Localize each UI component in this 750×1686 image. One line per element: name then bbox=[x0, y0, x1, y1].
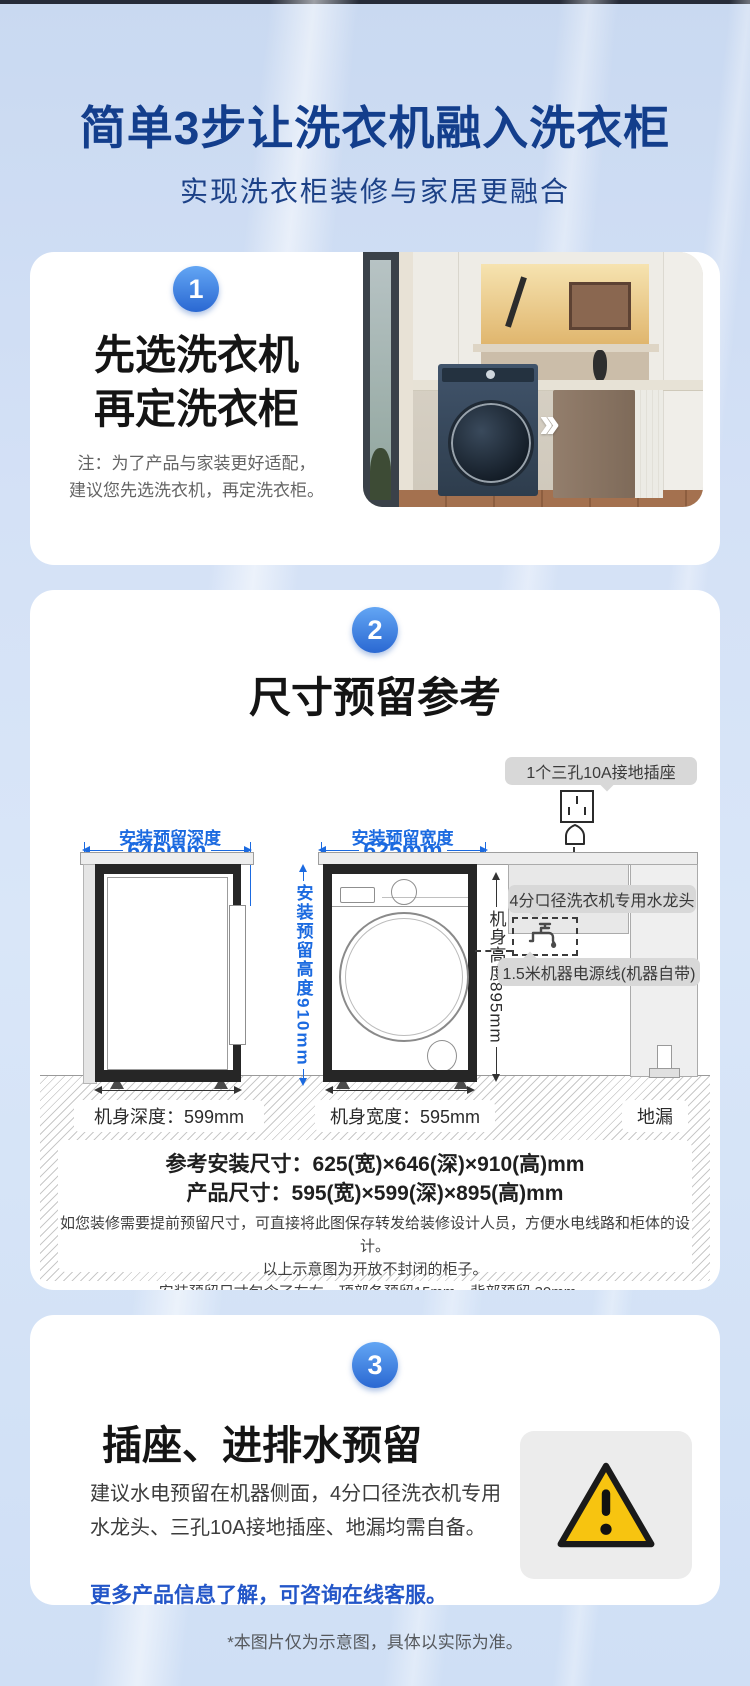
install-size-line: 参考安装尺寸：625(宽)×646(深)×910(高)mm bbox=[58, 1150, 692, 1179]
body-width-chip: 机身宽度：595mm bbox=[315, 1100, 495, 1132]
step1-badge: 1 bbox=[173, 266, 219, 312]
warning-box bbox=[520, 1431, 692, 1579]
machine-door-panel-side bbox=[229, 905, 246, 1045]
faucet-callout-bubble: 4分口径洗衣机专用水龙头 bbox=[508, 885, 696, 913]
step1-note-line1: 注：为了产品与家装更好适配， bbox=[30, 450, 363, 477]
washer-dial bbox=[486, 370, 495, 379]
cabinet-top-frame bbox=[95, 864, 241, 874]
machine-left-wall bbox=[323, 874, 332, 1082]
height-reserve-dim: 安装预留高度910mm bbox=[292, 864, 314, 1086]
step2-title: 尺寸预留参考 bbox=[30, 664, 720, 725]
faucet-icon bbox=[525, 921, 561, 949]
step2-card: 2 尺寸预留参考 1个三孔10A接地插座 安装预留深度 646mm bbox=[30, 590, 720, 1290]
step1-card: 1 先选洗衣机 再定洗衣柜 注：为了产品与家装更好适配， 建议您先选洗衣机，再定… bbox=[30, 252, 720, 565]
warning-triangle-icon bbox=[556, 1461, 656, 1549]
product-infographic-page: 简单3步让洗衣机融入洗衣柜 实现洗衣柜装修与家居更融合 1 先选洗衣机 再定洗衣… bbox=[0, 0, 750, 1686]
step1-heading: 先选洗衣机 再定洗衣柜 bbox=[30, 328, 363, 436]
photo-window-plant bbox=[370, 448, 391, 500]
filter-access-door bbox=[427, 1040, 457, 1072]
top-dark-strip bbox=[0, 0, 750, 4]
cabinet-right-frame-top bbox=[233, 874, 241, 907]
socket-slot bbox=[576, 796, 578, 804]
machine-side-outline bbox=[107, 877, 228, 1070]
product-size-line: 产品尺寸：595(宽)×599(深)×895(高)mm bbox=[58, 1179, 692, 1208]
step1-heading-line2: 再定洗衣柜 bbox=[30, 382, 363, 436]
drain-chip: 地漏 bbox=[622, 1100, 688, 1132]
machine-top-frame bbox=[323, 864, 477, 874]
body-depth-dim-arrow bbox=[94, 1078, 242, 1102]
cabinet-left-frame bbox=[95, 874, 104, 1082]
step3-badge: 3 bbox=[352, 1342, 398, 1388]
socket-slot bbox=[584, 807, 586, 815]
step1-heading-line1: 先选洗衣机 bbox=[30, 328, 363, 382]
summary-note1: 如您装修需要提前预留尺寸，可直接将此图保存转发给装修设计人员，方便水电线路和柜体… bbox=[58, 1212, 692, 1258]
step3-highlight: 更多产品信息了解，可咨询在线客服。 bbox=[90, 1579, 447, 1605]
photo-cabinet-seam bbox=[458, 252, 459, 380]
photo-vase bbox=[593, 350, 607, 382]
step3-card: 3 插座、进排水预留 建议水电预留在机器侧面，4分口径洗衣机专用水龙头、三孔10… bbox=[30, 1315, 720, 1605]
washer-door bbox=[448, 400, 534, 486]
chevron-right-icon: ›› bbox=[539, 398, 552, 448]
step1-note: 注：为了产品与家装更好适配， 建议您先选洗衣机，再定洗衣柜。 bbox=[30, 450, 363, 504]
photo-lower-cabinet bbox=[635, 390, 663, 498]
photo-shelf bbox=[473, 344, 659, 352]
step3-body: 建议水电预留在机器侧面，4分口径洗衣机专用水龙头、三孔10A接地插座、地漏均需自… bbox=[90, 1477, 510, 1545]
height-reserve-label: 安装预留高度910mm bbox=[295, 881, 312, 1070]
control-knob bbox=[391, 879, 417, 905]
step2-badge: 2 bbox=[352, 607, 398, 653]
drum-door-inner bbox=[345, 918, 463, 1036]
drain-base bbox=[649, 1068, 680, 1078]
photo-brown-door bbox=[553, 390, 635, 498]
power-cord-callout-bubble: 1.5米机器电源线(机器自带) bbox=[498, 958, 700, 986]
photo-washing-machine bbox=[438, 364, 538, 496]
photo-framed-art bbox=[569, 282, 631, 330]
summary-note3: 安装预留尺寸包含了左右、顶部各预留15mm，背部预留 30mm。 bbox=[58, 1281, 692, 1290]
footnote: *本图片仅为示意图，具体以实际为准。 bbox=[0, 1628, 750, 1653]
panel-divider-line bbox=[332, 906, 468, 907]
socket-slot bbox=[568, 807, 570, 815]
laundry-room-photo: ›› bbox=[363, 252, 703, 507]
body-width-dim-arrow bbox=[325, 1078, 475, 1102]
page-subtitle: 实现洗衣柜装修与家居更融合 bbox=[0, 170, 750, 210]
step1-note-line2: 建议您先选洗衣机，再定洗衣柜。 bbox=[30, 477, 363, 504]
detergent-drawer bbox=[340, 887, 375, 903]
photo-wall-edge bbox=[399, 252, 413, 507]
socket-callout-bubble: 1个三孔10A接地插座 bbox=[505, 757, 697, 785]
summary-note2: 以上示意图为开放不封闭的柜子。 bbox=[58, 1258, 692, 1281]
cord-path-dashed-line bbox=[475, 950, 512, 952]
power-socket-icon bbox=[560, 790, 594, 823]
step3-title: 插座、进排水预留 bbox=[102, 1413, 422, 1471]
dimension-summary-panel: 参考安装尺寸：625(宽)×646(深)×910(高)mm 产品尺寸：595(宽… bbox=[58, 1140, 692, 1272]
page-title: 简单3步让洗衣机融入洗衣柜 bbox=[0, 92, 750, 158]
body-depth-chip: 机身深度：599mm bbox=[74, 1100, 264, 1132]
machine-right-wall bbox=[468, 874, 477, 1082]
plug-icon bbox=[561, 823, 589, 846]
